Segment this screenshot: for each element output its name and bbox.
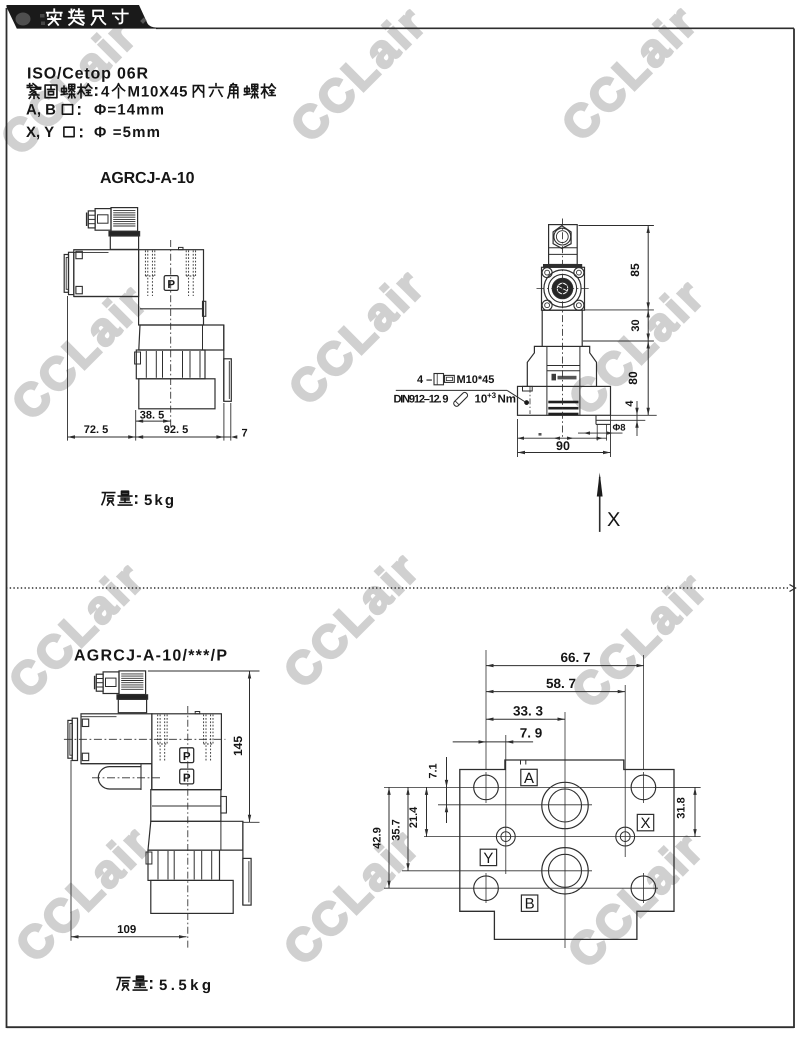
svg-text:4: 4 bbox=[624, 400, 636, 407]
svg-text:80: 80 bbox=[626, 371, 640, 385]
svg-text:7.1: 7.1 bbox=[427, 763, 439, 778]
svg-text:4: 4 bbox=[101, 84, 110, 101]
svg-text:5kg: 5kg bbox=[144, 492, 174, 509]
svg-text:145: 145 bbox=[231, 736, 245, 756]
svg-text:7. 9: 7. 9 bbox=[520, 726, 543, 741]
svg-text:4 –: 4 – bbox=[417, 374, 432, 386]
svg-text:Nm: Nm bbox=[498, 394, 517, 406]
svg-text:90: 90 bbox=[556, 439, 570, 453]
svg-text:42.9: 42.9 bbox=[372, 827, 384, 848]
svg-text:31.8: 31.8 bbox=[676, 797, 688, 818]
svg-text:92. 5: 92. 5 bbox=[164, 424, 188, 436]
svg-text:5.5kg: 5.5kg bbox=[159, 977, 211, 994]
svg-text:7: 7 bbox=[241, 428, 247, 440]
svg-text:X: X bbox=[640, 815, 650, 832]
svg-text:35.7: 35.7 bbox=[391, 819, 403, 840]
svg-text:ISO/Cetop 06R: ISO/Cetop 06R bbox=[27, 66, 148, 83]
svg-text:Φ8: Φ8 bbox=[612, 423, 625, 434]
svg-text:58. 7: 58. 7 bbox=[546, 676, 576, 691]
svg-text:M10X45: M10X45 bbox=[128, 84, 188, 101]
svg-text:10: 10 bbox=[475, 394, 488, 406]
svg-text:A, B: A, B bbox=[26, 102, 56, 119]
svg-text:M10*45: M10*45 bbox=[457, 374, 495, 386]
svg-text:B: B bbox=[525, 896, 535, 913]
svg-text:109: 109 bbox=[117, 924, 136, 936]
svg-text:Φ=14mm: Φ=14mm bbox=[94, 102, 164, 119]
svg-text:X: X bbox=[607, 509, 620, 531]
svg-text:30: 30 bbox=[630, 319, 642, 331]
svg-text:DIN912–12. 9: DIN912–12. 9 bbox=[394, 394, 449, 406]
svg-text:AGRCJ-A-10/***/P: AGRCJ-A-10/***/P bbox=[74, 648, 227, 665]
svg-text:X, Y: X, Y bbox=[26, 124, 54, 141]
svg-text:21.4: 21.4 bbox=[408, 806, 420, 828]
svg-text:85: 85 bbox=[628, 263, 642, 277]
svg-text:+3: +3 bbox=[487, 391, 497, 400]
svg-text:72. 5: 72. 5 bbox=[84, 424, 108, 436]
svg-text:66. 7: 66. 7 bbox=[560, 650, 590, 665]
svg-text:P: P bbox=[183, 773, 191, 785]
svg-text:Y: Y bbox=[483, 850, 493, 867]
svg-text:AGRCJ-A-10: AGRCJ-A-10 bbox=[100, 170, 195, 187]
svg-text:33. 3: 33. 3 bbox=[513, 704, 544, 719]
svg-text:P: P bbox=[183, 751, 191, 763]
svg-text:Φ =5mm: Φ =5mm bbox=[94, 124, 160, 141]
svg-text:38. 5: 38. 5 bbox=[140, 410, 164, 422]
svg-text:P: P bbox=[167, 279, 175, 291]
svg-text:A: A bbox=[524, 770, 534, 787]
